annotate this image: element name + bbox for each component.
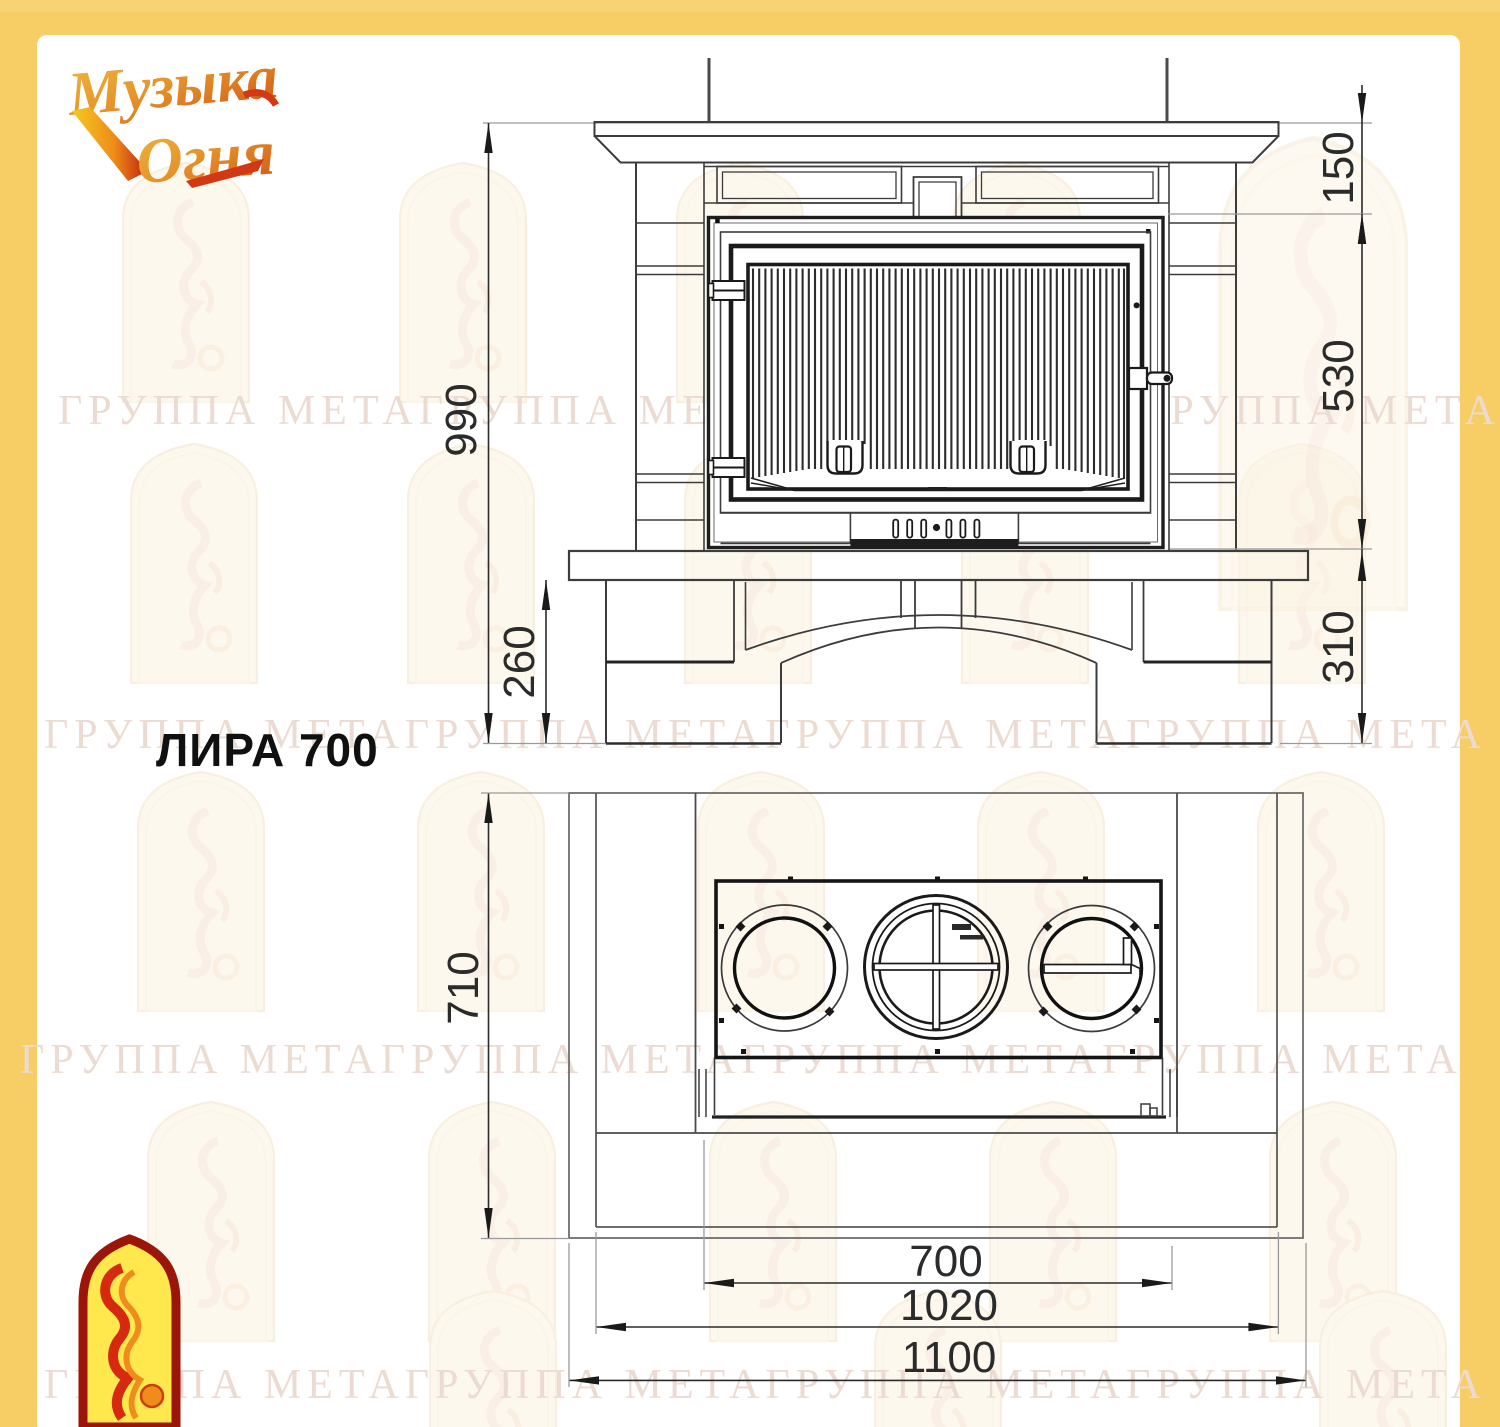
svg-text:710: 710 xyxy=(439,951,488,1024)
svg-text:150: 150 xyxy=(1314,131,1363,204)
svg-text:1020: 1020 xyxy=(900,1281,998,1330)
svg-text:990: 990 xyxy=(437,383,486,456)
svg-text:260: 260 xyxy=(495,625,544,698)
svg-text:ЛИРА 700: ЛИРА 700 xyxy=(156,724,379,776)
svg-text:ГРУППА МЕТАГРУППА МЕТАГРУППА М: ГРУППА МЕТАГРУППА МЕТАГРУППА МЕТАГРУППА … xyxy=(20,1037,1463,1083)
svg-text:700: 700 xyxy=(909,1237,982,1286)
svg-text:ГРУППА МЕТАГРУППА МЕТАГРУППА М: ГРУППА МЕТАГРУППА МЕТАГРУППА МЕТАГРУППА … xyxy=(44,1362,1487,1408)
svg-text:Огня: Огня xyxy=(134,116,277,196)
svg-text:530: 530 xyxy=(1314,339,1363,412)
svg-text:1100: 1100 xyxy=(902,1333,997,1382)
svg-text:310: 310 xyxy=(1314,610,1363,683)
